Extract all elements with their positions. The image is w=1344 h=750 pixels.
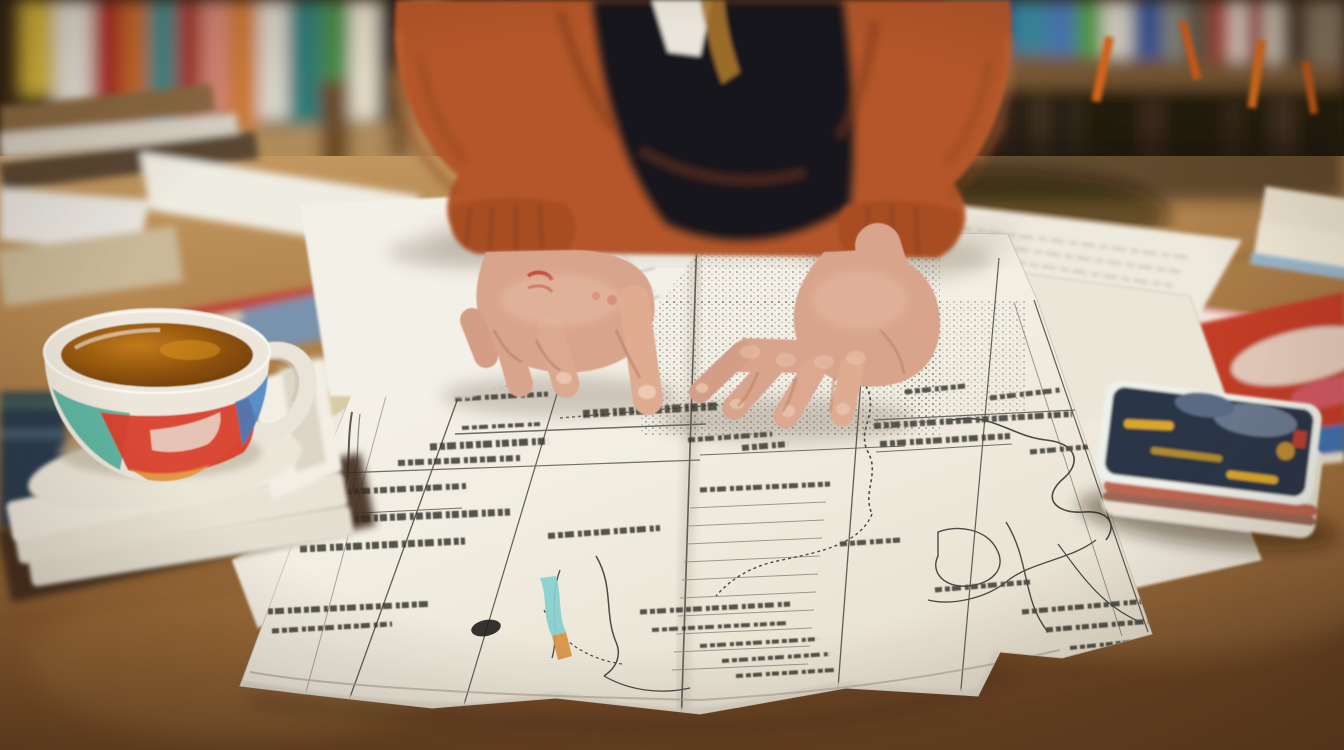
photo-canvas — [0, 0, 1344, 750]
vignette — [0, 0, 1344, 750]
study-desk-photo — [0, 0, 1344, 750]
